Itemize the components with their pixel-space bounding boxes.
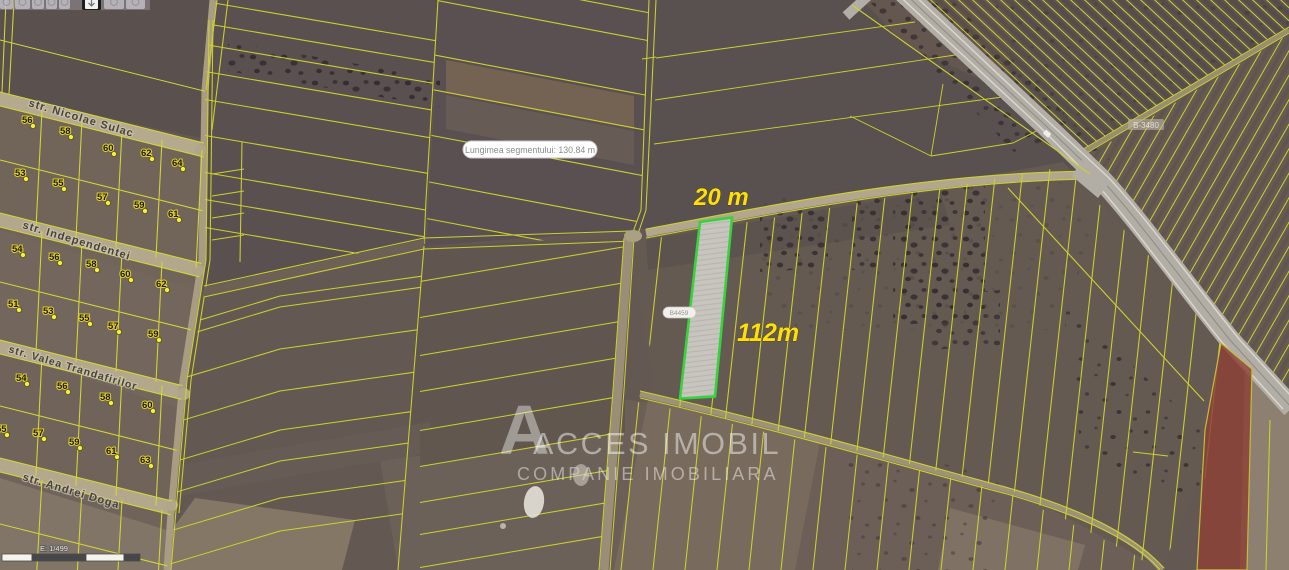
svg-text:COMPANIE IMOBILIARA: COMPANIE IMOBILIARA <box>517 464 779 484</box>
svg-text:B4459: B4459 <box>670 310 689 317</box>
svg-text:ACCES IMOBIL: ACCES IMOBIL <box>533 427 781 461</box>
svg-text:20 m: 20 m <box>693 184 749 211</box>
svg-text:B-3480: B-3480 <box>1133 121 1159 130</box>
svg-text:112m: 112m <box>737 319 799 347</box>
svg-text:E: 1/499: E: 1/499 <box>40 544 68 553</box>
svg-text:Lungimea segmentului: 130.84 m: Lungimea segmentului: 130.84 m <box>465 145 595 155</box>
